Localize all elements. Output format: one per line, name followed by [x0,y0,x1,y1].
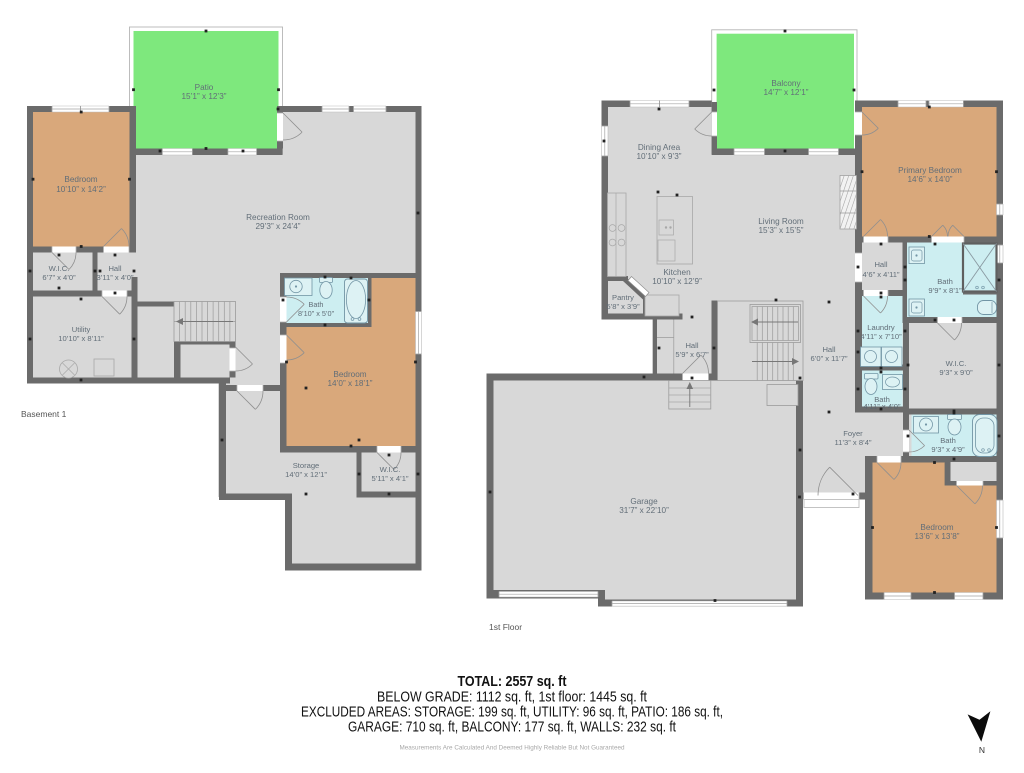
svg-text:Bedroom: Bedroom [64,175,97,184]
svg-text:Bedroom: Bedroom [333,370,366,379]
svg-text:10’10” x 8’11”: 10’10” x 8’11” [58,334,104,343]
svg-text:N: N [979,745,985,755]
svg-text:Utility: Utility [72,325,91,334]
svg-text:Bath: Bath [937,277,953,286]
svg-text:4’6” x 4’11”: 4’6” x 4’11” [862,270,899,279]
svg-text:13’6” x 13’8”: 13’6” x 13’8” [914,532,959,541]
svg-text:15’3” x 15’5”: 15’3” x 15’5” [758,226,803,235]
svg-text:5’8” x 3’9”: 5’8” x 3’9” [606,302,640,311]
svg-text:8’10” x 5’0”: 8’10” x 5’0” [298,309,335,318]
svg-text:3’11” x 4’0”: 3’11” x 4’0” [96,273,133,282]
svg-text:Balcony: Balcony [771,79,801,88]
svg-text:BELOW GRADE: 1112 sq. ft, 1st: BELOW GRADE: 1112 sq. ft, 1st floor: 144… [377,690,647,706]
svg-text:6’0” x 11’7”: 6’0” x 11’7” [810,354,847,363]
svg-text:GARAGE: 710 sq. ft, BALCONY: 1: GARAGE: 710 sq. ft, BALCONY: 177 sq. ft,… [348,720,676,736]
svg-text:31’7” x 22’10”: 31’7” x 22’10” [619,506,669,515]
svg-text:29’3” x 24’4”: 29’3” x 24’4” [255,222,300,231]
svg-text:W.I.C.: W.I.C. [49,264,70,273]
svg-text:Storage: Storage [293,461,320,470]
svg-text:Kitchen: Kitchen [663,268,691,277]
svg-text:EXCLUDED AREAS: STORAGE: 199 s: EXCLUDED AREAS: STORAGE: 199 sq. ft, UTI… [301,705,723,721]
svg-text:Measurements Are Calculated An: Measurements Are Calculated And Deemed H… [400,745,625,752]
svg-text:Recreation Room: Recreation Room [246,213,310,222]
svg-text:10’10” x 14’2”: 10’10” x 14’2” [56,185,106,194]
svg-text:9’9” x 8’1”: 9’9” x 8’1” [928,286,962,295]
svg-text:Dining Area: Dining Area [638,143,681,152]
svg-text:6’7” x 4’0”: 6’7” x 4’0” [42,273,76,282]
svg-text:Bath: Bath [308,300,323,309]
svg-text:TOTAL: 2557 sq. ft: TOTAL: 2557 sq. ft [458,674,567,690]
svg-text:15’1” x 12’3”: 15’1” x 12’3” [181,92,226,101]
svg-text:Bath: Bath [940,436,956,445]
svg-text:Primary Bedroom: Primary Bedroom [898,166,962,175]
svg-text:Hall: Hall [685,341,698,350]
svg-text:9’3” x 9’0”: 9’3” x 9’0” [939,368,973,377]
svg-text:14’6” x 14’0”: 14’6” x 14’0” [907,175,952,184]
svg-text:Living Room: Living Room [758,217,804,226]
svg-text:W.I.C.: W.I.C. [946,359,967,368]
svg-text:14’0” x 12’1”: 14’0” x 12’1” [285,470,327,479]
svg-text:Garage: Garage [630,497,658,506]
svg-text:Patio: Patio [195,83,214,92]
svg-text:4’11” x 7’10”: 4’11” x 7’10” [860,332,902,341]
svg-text:10’10” x 12’9”: 10’10” x 12’9” [652,277,702,286]
svg-text:11’3” x 8’4”: 11’3” x 8’4” [834,438,871,447]
svg-text:5’9” x 6’7”: 5’9” x 6’7” [675,350,709,359]
svg-text:Laundry: Laundry [867,323,895,332]
svg-text:Basement 1: Basement 1 [21,409,67,419]
svg-text:Pantry: Pantry [612,293,634,302]
svg-text:5’11” x 4’1”: 5’11” x 4’1” [371,474,408,483]
svg-text:9’3” x 4’9”: 9’3” x 4’9” [931,445,965,454]
svg-text:1st Floor: 1st Floor [489,622,522,632]
svg-text:14’7” x 12’1”: 14’7” x 12’1” [763,88,808,97]
svg-text:14’0” x 18’1”: 14’0” x 18’1” [327,379,372,388]
svg-text:10’10” x 9’3”: 10’10” x 9’3” [636,152,681,161]
svg-text:Hall: Hall [822,345,835,354]
svg-text:Hall: Hall [874,260,887,269]
svg-text:Bedroom: Bedroom [920,523,953,532]
svg-text:Hall: Hall [108,264,121,273]
svg-text:W.I.C.: W.I.C. [380,465,401,474]
svg-text:Foyer: Foyer [843,429,863,438]
